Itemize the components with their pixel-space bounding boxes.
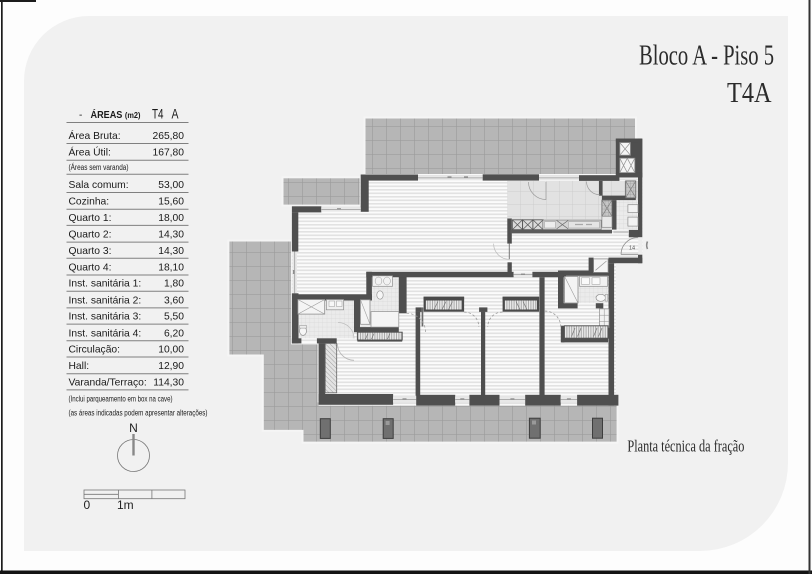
svg-text:53,00: 53,00 xyxy=(158,180,184,191)
svg-text:Sala comum:: Sala comum: xyxy=(69,180,129,191)
svg-text:Inst. sanitária 2:: Inst. sanitária 2: xyxy=(69,295,142,306)
svg-text:(as áreas indicadas podem apre: (as áreas indicadas podem apresentar alt… xyxy=(69,409,208,418)
svg-text:Área Útil:: Área Útil: xyxy=(69,146,111,159)
svg-text:14,30: 14,30 xyxy=(158,230,184,241)
svg-text:(Inclui parqueamento em box na: (Inclui parqueamento em box na cave) xyxy=(69,395,173,404)
svg-text:Planta técnica da fração: Planta técnica da fração xyxy=(627,437,744,456)
svg-text:A: A xyxy=(172,106,179,122)
svg-text:Cozinha:: Cozinha: xyxy=(69,197,110,208)
svg-text:10,00: 10,00 xyxy=(158,345,184,356)
svg-text:265,80: 265,80 xyxy=(153,131,185,142)
svg-text:ÁREAS (m2): ÁREAS (m2) xyxy=(91,108,141,121)
svg-text:Quarto 1:: Quarto 1: xyxy=(69,213,112,224)
svg-text:(Áreas sem varanda): (Áreas sem varanda) xyxy=(69,163,129,172)
svg-text:3,60: 3,60 xyxy=(164,295,184,306)
svg-text:T4A: T4A xyxy=(727,77,772,109)
svg-text:Bloco A - Piso 5: Bloco A - Piso 5 xyxy=(639,40,774,72)
svg-text:18,10: 18,10 xyxy=(158,263,184,274)
svg-text:167,80: 167,80 xyxy=(153,148,185,159)
svg-text:15,60: 15,60 xyxy=(158,197,184,208)
svg-text:0: 0 xyxy=(84,498,91,512)
svg-text:14: 14 xyxy=(629,246,635,252)
svg-text:Circulação:: Circulação: xyxy=(69,345,121,356)
svg-text:T4: T4 xyxy=(152,106,164,122)
svg-text:N: N xyxy=(129,421,138,435)
svg-text:12,90: 12,90 xyxy=(158,361,184,372)
svg-text:6,20: 6,20 xyxy=(164,328,184,339)
svg-text:14,30: 14,30 xyxy=(158,246,184,257)
svg-text:Inst. sanitária 3:: Inst. sanitária 3: xyxy=(69,312,142,323)
svg-text:1m: 1m xyxy=(117,498,134,512)
svg-text:Hall:: Hall: xyxy=(69,361,90,372)
svg-text:Inst. sanitária 4:: Inst. sanitária 4: xyxy=(69,328,142,339)
svg-text:18,00: 18,00 xyxy=(158,213,184,224)
svg-text:1,80: 1,80 xyxy=(164,279,184,290)
svg-text:Quarto 4:: Quarto 4: xyxy=(69,263,112,274)
svg-text:5,50: 5,50 xyxy=(164,312,184,323)
svg-text:Inst. sanitária 1:: Inst. sanitária 1: xyxy=(69,279,142,290)
svg-text:Varanda/Terraço:: Varanda/Terraço: xyxy=(69,377,147,388)
svg-text:Área Bruta:: Área Bruta: xyxy=(69,129,121,142)
svg-text:114,30: 114,30 xyxy=(153,377,184,388)
svg-text:-: - xyxy=(79,110,82,121)
svg-text:Quarto 3:: Quarto 3: xyxy=(69,246,112,257)
svg-text:Quarto 2:: Quarto 2: xyxy=(69,230,112,241)
